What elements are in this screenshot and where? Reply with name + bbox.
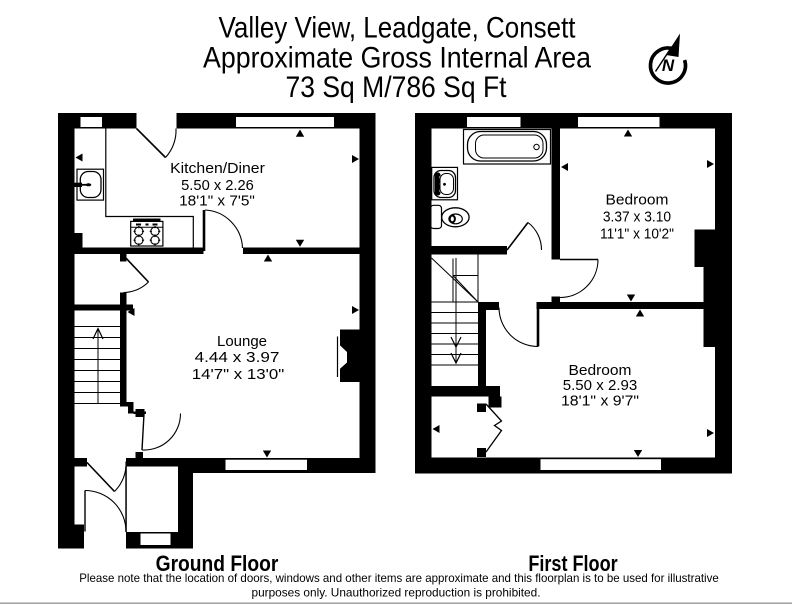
svg-text:Valley View, Leadgate, Consett: Valley View, Leadgate, Consett xyxy=(219,12,577,45)
svg-text:Kitchen/Diner: Kitchen/Diner xyxy=(170,161,265,177)
svg-text:18'1" x 9'7": 18'1" x 9'7" xyxy=(561,393,639,409)
svg-text:Approximate Gross Internal Are: Approximate Gross Internal Area xyxy=(203,42,591,75)
svg-text:N: N xyxy=(662,56,675,75)
svg-text:14'7" x 13'0": 14'7" x 13'0" xyxy=(192,367,284,383)
svg-text:11'1" x 10'2": 11'1" x 10'2" xyxy=(600,227,674,243)
svg-text:4.44 x 3.97: 4.44 x 3.97 xyxy=(195,350,280,366)
svg-text:18'1" x 7'5": 18'1" x 7'5" xyxy=(179,194,255,210)
svg-text:Bedroom: Bedroom xyxy=(606,193,669,209)
svg-text:purposes only. Unauthorized re: purposes only. Unauthorized reproduction… xyxy=(252,586,541,600)
svg-text:Lounge: Lounge xyxy=(217,334,267,350)
svg-text:Please note that the location: Please note that the location of doors, … xyxy=(79,571,719,585)
svg-text:5.50 x 2.93: 5.50 x 2.93 xyxy=(563,378,638,394)
svg-text:73 Sq M/786 Sq Ft: 73 Sq M/786 Sq Ft xyxy=(286,71,508,104)
svg-text:Bedroom: Bedroom xyxy=(569,363,632,379)
svg-text:5.50 x 2.26: 5.50 x 2.26 xyxy=(181,178,254,194)
svg-text:3.37 x 3.10: 3.37 x 3.10 xyxy=(603,210,671,226)
